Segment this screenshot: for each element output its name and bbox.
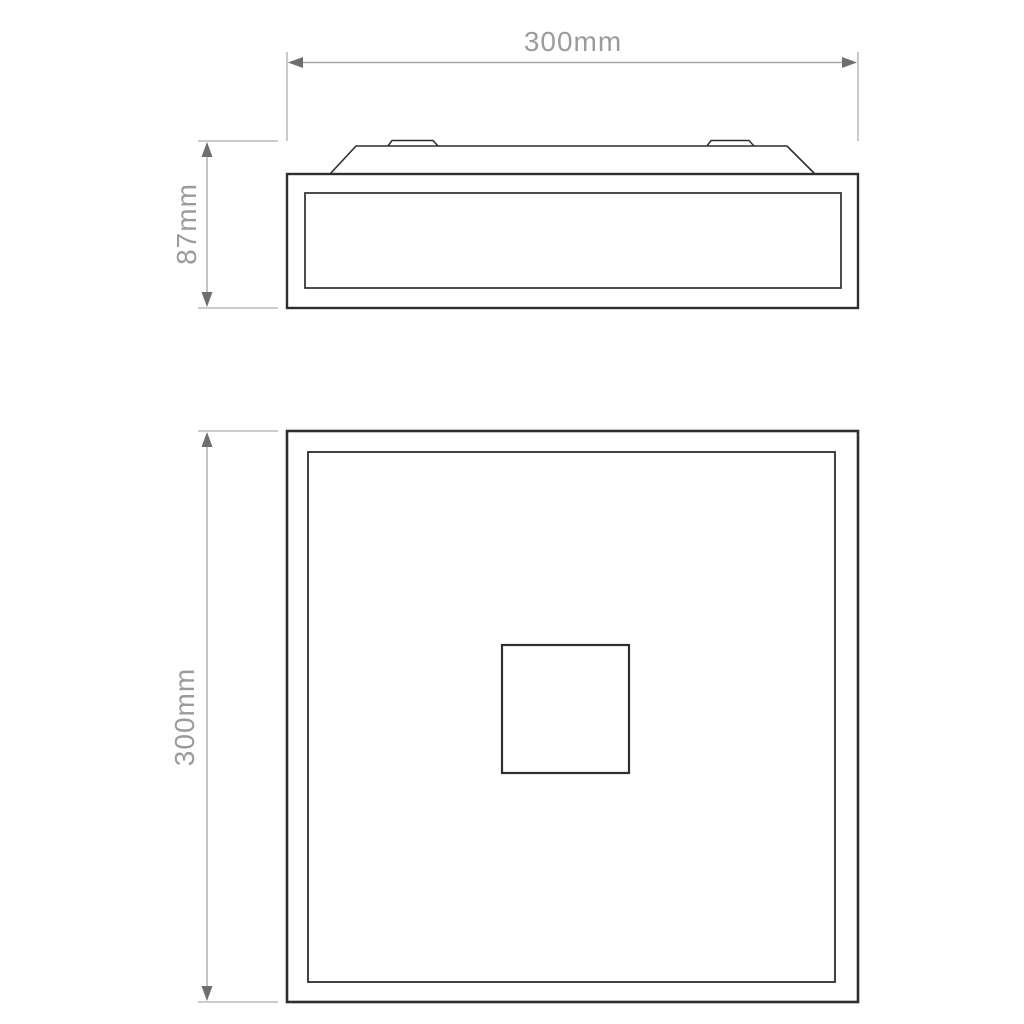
side-height-dimension: 87mm <box>171 141 278 308</box>
side-elevation-view <box>287 141 858 309</box>
mounting-clip-left <box>388 141 438 147</box>
housing-trapezoid <box>330 146 815 174</box>
arrowhead-right-icon <box>842 57 857 68</box>
top-width-label: 300mm <box>524 26 622 57</box>
arrowhead-down-icon <box>202 986 213 1001</box>
plan-inner-frame <box>308 452 835 982</box>
plan-outer-frame <box>287 431 858 1002</box>
plan-view <box>287 431 858 1002</box>
mounting-clip-right <box>707 141 754 147</box>
side-inner-frame <box>305 193 841 288</box>
arrowhead-up-icon <box>202 142 213 157</box>
drawing-canvas: 300mm 87mm <box>0 0 1024 1024</box>
technical-drawing: 300mm 87mm <box>0 0 1024 1024</box>
arrowhead-down-icon <box>202 292 213 307</box>
side-height-label: 87mm <box>171 183 202 265</box>
plan-height-label: 300mm <box>169 668 200 766</box>
plan-center-detail <box>502 645 629 773</box>
plan-height-dimension: 300mm <box>169 431 278 1002</box>
arrowhead-left-icon <box>288 57 303 68</box>
arrowhead-up-icon <box>202 432 213 447</box>
top-width-dimension: 300mm <box>287 26 858 141</box>
